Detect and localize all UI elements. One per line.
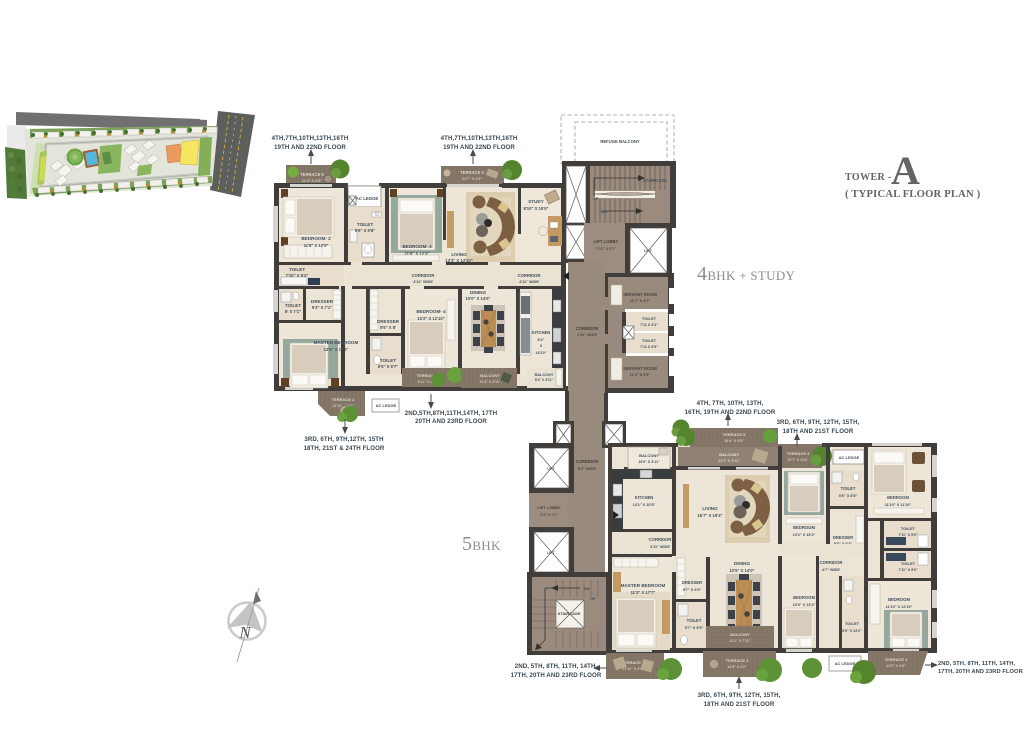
svg-text:18TH AND 21ST FLOOR: 18TH AND 21ST FLOOR (704, 701, 775, 708)
svg-text:TERRACE 4: TERRACE 4 (460, 170, 484, 175)
svg-text:DRESSER: DRESSER (377, 319, 400, 324)
svg-text:TOILET: TOILET (687, 618, 702, 623)
svg-text:DN: DN (584, 587, 590, 591)
svg-text:BEDROOM: BEDROOM (887, 495, 909, 500)
svg-text:11'10" X 11'10": 11'10" X 11'10" (885, 503, 912, 507)
svg-text:DRESSER: DRESSER (311, 299, 334, 304)
svg-text:DINING: DINING (734, 561, 751, 566)
svg-text:CORRIDOR: CORRIDOR (576, 326, 599, 331)
svg-text:17TH, 20TH AND 23RD FLOOR: 17TH, 20TH AND 23RD FLOOR (511, 672, 602, 679)
svg-text:N: N (238, 623, 252, 642)
svg-text:STAIRCASE: STAIRCASE (558, 611, 581, 616)
svg-text:BALCONY: BALCONY (730, 632, 750, 637)
svg-text:AC LEDGE: AC LEDGE (376, 403, 397, 408)
svg-text:TERRACE 5: TERRACE 5 (723, 432, 746, 437)
svg-text:5'5" X 9'7": 5'5" X 9'7" (378, 364, 398, 369)
svg-text:11'10" X 12'10": 11'10" X 12'10" (886, 605, 913, 609)
svg-text:LIVING: LIVING (451, 252, 467, 257)
svg-text:8'3" WIDE: 8'3" WIDE (578, 467, 596, 471)
svg-text:18TH, 21ST & 24TH FLOOR: 18TH, 21ST & 24TH FLOOR (304, 445, 385, 452)
svg-text:DRESSER: DRESSER (833, 535, 853, 540)
svg-text:CORRIDOR: CORRIDOR (576, 459, 599, 464)
svg-text:5'6" X 9'8": 5'6" X 9'8" (355, 228, 375, 233)
svg-text:13'1" X 10'5": 13'1" X 10'5" (633, 503, 656, 507)
svg-text:16TH, 19TH AND 22ND FLOOR: 16TH, 19TH AND 22ND FLOOR (685, 409, 776, 416)
svg-text:STUDY: STUDY (528, 199, 544, 204)
svg-text:17TH, 20TH AND 23RD FLOOR: 17TH, 20TH AND 23RD FLOOR (938, 669, 1023, 675)
svg-text:2ND, 5TH, 8TH, 11TH, 14TH,: 2ND, 5TH, 8TH, 11TH, 14TH, (515, 663, 598, 670)
svg-text:12'1" X 7'11": 12'1" X 7'11" (729, 639, 751, 643)
svg-text:LIFT: LIFT (644, 249, 652, 253)
svg-text:REFUGE BALCONY: REFUGE BALCONY (600, 139, 640, 144)
svg-text:11'7" X 4'7": 11'7" X 4'7" (630, 299, 651, 303)
svg-text:7'11 X 3'5": 7'11 X 3'5" (640, 345, 658, 349)
svg-text:BEDROOM: BEDROOM (793, 525, 815, 530)
svg-text:TERRACE 5: TERRACE 5 (300, 172, 324, 177)
svg-text:A: A (891, 148, 920, 193)
svg-text:4TH, 7TH, 10TH, 13TH,: 4TH, 7TH, 10TH, 13TH, (697, 400, 764, 407)
svg-text:DINING: DINING (470, 290, 487, 295)
svg-text:LIFT: LIFT (547, 551, 555, 555)
svg-text:LIVING: LIVING (702, 506, 718, 511)
svg-text:20TH AND 23RD FLOOR: 20TH AND 23RD FLOOR (415, 418, 487, 425)
svg-text:7'11 X 3'4": 7'11 X 3'4" (640, 323, 658, 327)
svg-text:TOILET: TOILET (841, 486, 856, 491)
svg-text:7'11" X 5'6": 7'11" X 5'6" (898, 568, 918, 572)
svg-text:7'11" X 6'7": 7'11" X 6'7" (596, 247, 617, 251)
svg-text:5'6" X 8'5": 5'6" X 8'5" (839, 494, 858, 498)
svg-text:TOILET: TOILET (901, 561, 916, 566)
svg-text:TOWER -: TOWER - (845, 172, 892, 183)
svg-text:8'4": 8'4" (538, 338, 545, 342)
svg-text:TOILET: TOILET (380, 358, 396, 363)
svg-text:11'4" X 4'5": 11'4" X 4'5" (302, 179, 323, 183)
svg-text:TOILET: TOILET (285, 303, 301, 308)
svg-text:12'6" X 4'8": 12'6" X 4'8" (886, 664, 906, 668)
svg-text:BEDROOM- 3: BEDROOM- 3 (402, 244, 432, 249)
svg-text:CORRIDOR: CORRIDOR (518, 273, 541, 278)
svg-text:TOILET: TOILET (357, 222, 373, 227)
svg-text:TOILET: TOILET (901, 526, 916, 531)
svg-text:4'11" WIDE: 4'11" WIDE (519, 280, 539, 284)
svg-text:13'6" X 11'2": 13'6" X 11'2" (324, 347, 349, 352)
svg-text:11'7" X 4'11": 11'7" X 4'11" (787, 458, 808, 462)
svg-text:3RD, 6TH, 9TH, 12TH, 15TH,: 3RD, 6TH, 9TH, 12TH, 15TH, (777, 419, 860, 426)
svg-text:10'0" X 14'6": 10'0" X 14'6" (465, 296, 490, 301)
svg-text:10'6" X 3'11": 10'6" X 3'11" (638, 460, 660, 464)
svg-text:3RD, 6TH, 9TH,12TH, 15TH: 3RD, 6TH, 9TH,12TH, 15TH (304, 436, 383, 443)
svg-text:SERVANT ROOM: SERVANT ROOM (623, 366, 657, 371)
svg-text:4TH,7TH,10TH,13TH,16TH: 4TH,7TH,10TH,13TH,16TH (441, 135, 518, 142)
svg-text:BEDROOM- 4: BEDROOM- 4 (416, 309, 446, 314)
svg-text:6'3" X 7'2": 6'3" X 7'2" (540, 513, 558, 517)
svg-text:4'10" WIDE: 4'10" WIDE (577, 333, 597, 337)
svg-text:5'7" X 6'9": 5'7" X 6'9" (683, 588, 702, 592)
svg-text:CORRIDOR: CORRIDOR (649, 537, 672, 542)
svg-text:4TH,7TH,10TH,13TH,16TH: 4TH,7TH,10TH,13TH,16TH (272, 135, 349, 142)
svg-text:BALCONY: BALCONY (535, 373, 554, 377)
svg-text:5'7" X 9'5": 5'7" X 9'5" (685, 626, 704, 630)
svg-text:5'5" X 8': 5'5" X 8' (380, 325, 396, 330)
svg-text:13'11" X 4'1": 13'11" X 4'1" (622, 667, 644, 671)
svg-text:TERRACE 2: TERRACE 2 (726, 658, 749, 663)
svg-text:STAIRCASE: STAIRCASE (643, 178, 667, 183)
svg-text:KITCHEN: KITCHEN (635, 495, 654, 500)
svg-text:MASTER BEDROOM: MASTER BEDROOM (621, 583, 666, 588)
svg-text:TOILET: TOILET (845, 621, 860, 626)
svg-text:X: X (540, 344, 543, 348)
svg-text:38'4" X 4'5": 38'4" X 4'5" (724, 439, 744, 443)
svg-text:14'9" X 4'2": 14'9" X 4'2" (727, 665, 747, 669)
svg-text:AC LEDGE: AC LEDGE (835, 661, 856, 666)
svg-text:DN: DN (601, 210, 607, 214)
svg-text:BALCONY: BALCONY (719, 452, 739, 457)
svg-text:TERRACE 4: TERRACE 4 (787, 451, 810, 456)
svg-text:19TH AND 22ND FLOOR: 19TH AND 22ND FLOOR (274, 144, 346, 151)
svg-text:4'7" WIDE: 4'7" WIDE (822, 568, 840, 572)
svg-text:10'2" X 12'10": 10'2" X 12'10" (417, 316, 444, 321)
svg-text:MASTER BEDROOM: MASTER BEDROOM (314, 340, 359, 345)
svg-text:TERRACE 3: TERRACE 3 (885, 657, 908, 662)
svg-text:SERVANT ROOM: SERVANT ROOM (623, 292, 657, 297)
svg-text:13'10": 13'10" (535, 351, 546, 355)
svg-text:LIFT LOBBY: LIFT LOBBY (594, 239, 619, 244)
svg-text:12'5" X 14'0": 12'5" X 14'0" (729, 568, 754, 573)
svg-text:( TYPICAL FLOOR PLAN ): ( TYPICAL FLOOR PLAN ) (845, 189, 981, 200)
svg-text:8'10" X 15'5": 8'10" X 15'5" (523, 206, 548, 211)
svg-text:4'11" WIDE: 4'11" WIDE (413, 280, 433, 284)
svg-text:4'11" WIDE: 4'11" WIDE (650, 545, 670, 549)
svg-text:TOILET: TOILET (642, 316, 657, 321)
svg-text:11'8" X 12'0": 11'8" X 12'0" (304, 243, 329, 248)
svg-text:TERRACE 2: TERRACE 2 (332, 397, 355, 402)
svg-text:5'6" X 13'2": 5'6" X 13'2" (842, 629, 862, 633)
svg-text:TOILET: TOILET (289, 267, 305, 272)
svg-text:3RD, 6TH, 9TH, 12TH, 15TH,: 3RD, 6TH, 9TH, 12TH, 15TH, (698, 692, 781, 699)
svg-text:24'7" X 4'2": 24'7" X 4'2" (462, 177, 483, 181)
svg-text:LIFT LOBBY: LIFT LOBBY (537, 505, 561, 510)
svg-text:7'11" X 5'6": 7'11" X 5'6" (898, 533, 918, 537)
svg-text:2ND,5TH,8TH,11TH,14TH, 17TH: 2ND,5TH,8TH,11TH,14TH, 17TH (405, 410, 497, 417)
svg-text:BEDROOM- 2: BEDROOM- 2 (301, 236, 331, 241)
svg-text:5'3" X 7'1": 5'3" X 7'1" (312, 305, 332, 310)
svg-text:TOILET: TOILET (642, 338, 657, 343)
svg-text:31'1" X 3'11": 31'1" X 3'11" (718, 459, 740, 463)
svg-text:11'2" X 6'3": 11'2" X 6'3" (630, 373, 651, 377)
svg-text:18TH AND 21ST FLOOR: 18TH AND 21ST FLOOR (783, 428, 854, 435)
svg-text:LIFT: LIFT (547, 467, 555, 471)
svg-text:CORRIDOR: CORRIDOR (412, 273, 435, 278)
svg-text:BALCONY: BALCONY (639, 453, 659, 458)
svg-text:KITCHEN: KITCHEN (532, 330, 551, 335)
svg-text:BALCONY: BALCONY (480, 373, 500, 378)
svg-text:BEDROOM: BEDROOM (793, 595, 815, 600)
svg-text:16'7" X 19'3": 16'7" X 19'3" (697, 513, 722, 518)
svg-text:19TH AND 22ND FLOOR: 19TH AND 22ND FLOOR (443, 144, 515, 151)
svg-text:7'10" X 5'2": 7'10" X 5'2" (286, 273, 309, 278)
svg-text:CORRIDOR: CORRIDOR (820, 560, 843, 565)
svg-text:11'3" X 17'7": 11'3" X 17'7" (631, 590, 656, 595)
svg-text:10'3" X 13'2": 10'3" X 13'2" (793, 603, 816, 607)
svg-text:UP: UP (590, 597, 596, 601)
svg-text:11'4" X 3'11": 11'4" X 3'11" (479, 380, 500, 384)
svg-text:BEDROOM: BEDROOM (888, 597, 910, 602)
svg-text:UP: UP (593, 197, 599, 201)
svg-text:10'2" X 15'2": 10'2" X 15'2" (793, 533, 816, 537)
svg-text:AC LEDGE: AC LEDGE (839, 455, 860, 460)
svg-text:AC LEDGE: AC LEDGE (356, 196, 379, 201)
svg-text:8'4" X 3'11": 8'4" X 3'11" (535, 378, 554, 382)
svg-text:2ND, 5TH, 8TH, 11TH, 14TH,: 2ND, 5TH, 8TH, 11TH, 14TH, (938, 661, 1016, 667)
svg-text:DRESSER: DRESSER (682, 580, 702, 585)
svg-text:6' X 7'1": 6' X 7'1" (285, 309, 301, 314)
